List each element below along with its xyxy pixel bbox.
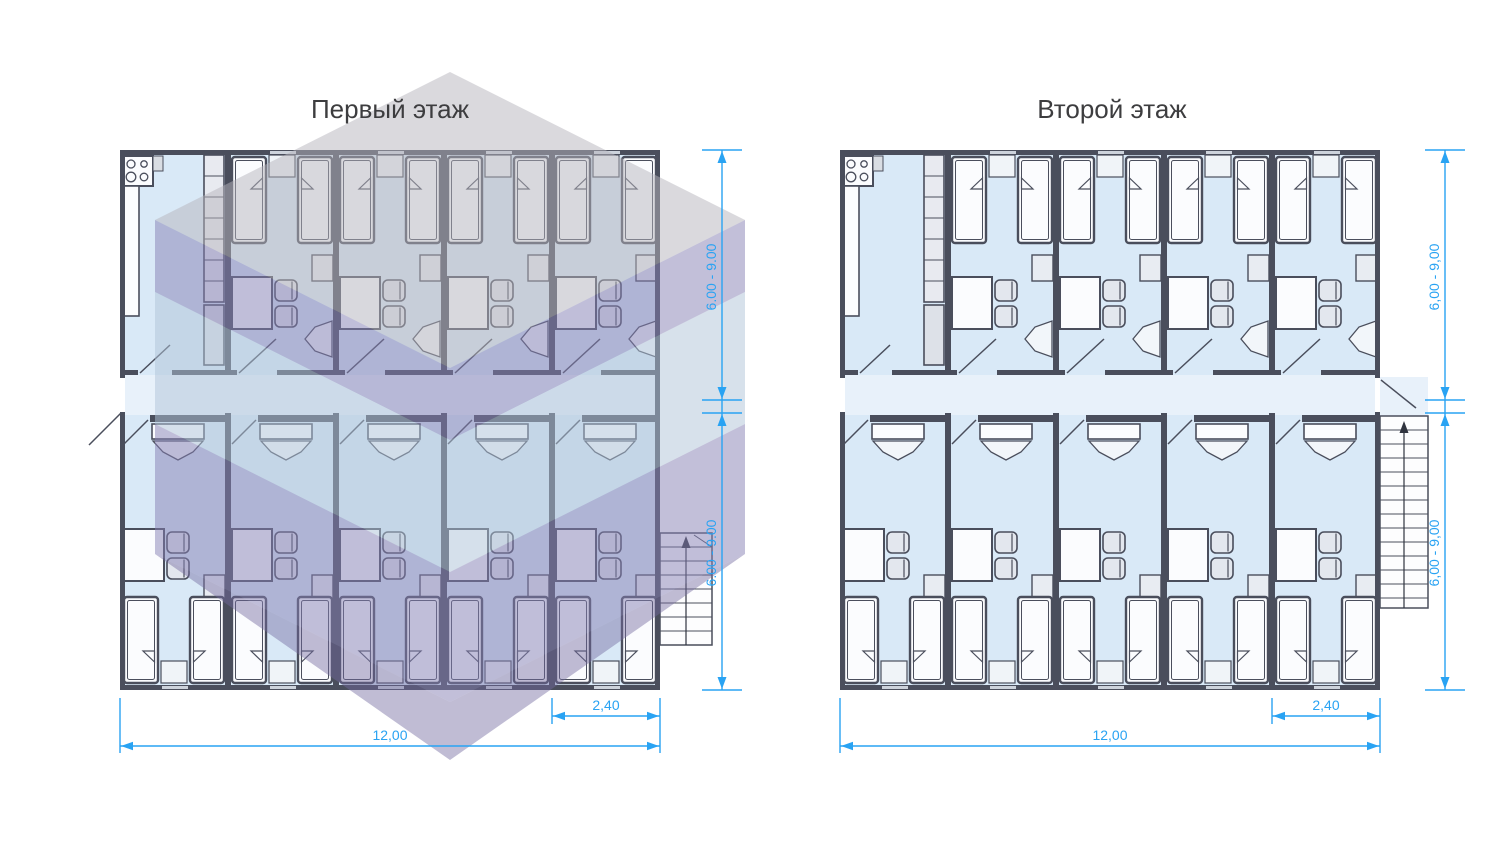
total-width-label: 12,00 [372,727,407,743]
module-width-label: 2,40 [592,697,619,713]
second-floor-title: Второй этаж [1037,94,1187,124]
outer-wall-right [1375,150,1380,378]
staircase [1380,416,1428,608]
first-floor-title: Первый этаж [311,94,470,124]
depth-dimension-label: 6.00 - 9.00 [703,519,719,586]
depth-dimension-label: 6,00 - 9,00 [1426,519,1442,586]
floor-plans-canvas: Первый этаж Второй этаж 6.00 - 9.00 6.00… [0,0,1500,844]
entrance-door-swing [89,413,121,445]
floor-plan-drawing: Первый этаж Второй этаж 6.00 - 9.00 6.00… [0,0,1500,844]
stair-landing [1380,377,1428,416]
module-width-label: 2,40 [1312,697,1339,713]
total-width-label: 12,00 [1092,727,1127,743]
second-floor-plan [840,150,1428,690]
depth-dimension-label: 6,00 - 9,00 [1426,243,1442,310]
depth-dimension-label: 6.00 - 9.00 [703,243,719,310]
